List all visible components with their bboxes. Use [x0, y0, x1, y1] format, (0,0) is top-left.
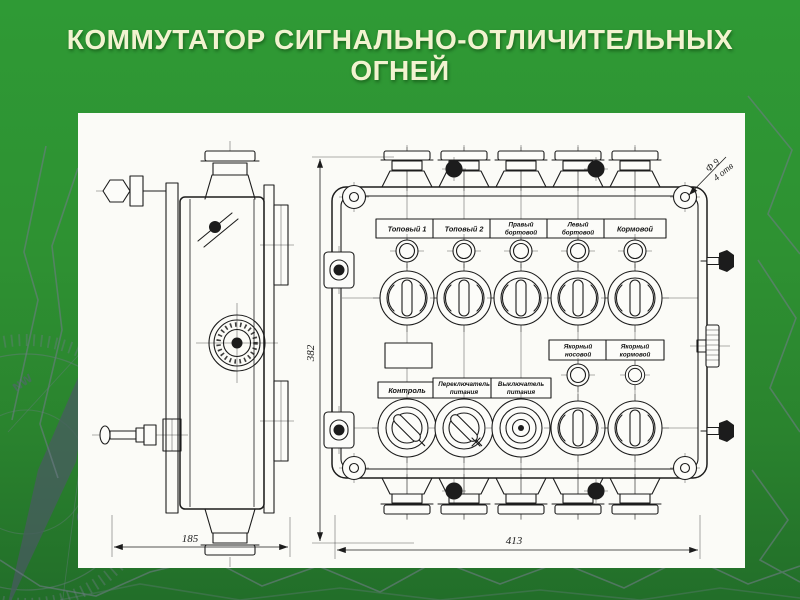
panel-label-yakorny-kormovoy: Якорный кормовой — [606, 340, 664, 360]
light-switch — [601, 264, 669, 332]
hole-callout: Ф 9 4 отв — [689, 152, 736, 195]
dim-413: 413 — [506, 535, 523, 547]
svg-text:Выключатель: Выключатель — [498, 381, 544, 388]
side-terminal-bolt — [701, 420, 734, 442]
indicator-lamp — [447, 234, 481, 268]
cable-gland-bottom — [381, 474, 433, 520]
compass-nw-label: NW — [10, 372, 35, 395]
drawing-panel: 185 — [78, 113, 745, 568]
dim-382: 382 — [305, 344, 317, 362]
svg-text:Правый: Правый — [509, 221, 534, 229]
cable-gland-bottom — [609, 474, 661, 520]
column-centerlines — [407, 147, 635, 519]
dimension-side-width: 185 — [112, 515, 290, 557]
cable-gland-bottom — [495, 474, 547, 520]
svg-text:Топовый 2: Топовый 2 — [445, 225, 484, 234]
svg-text:Переключатель: Переключатель — [438, 381, 490, 388]
slide-title: КОММУТАТОР СИГНАЛЬНО-ОТЛИЧИТЕЛЬНЫХ ОГНЕЙ — [0, 24, 800, 87]
indicator-lamp — [561, 358, 595, 392]
svg-text:кормовой: кормовой — [620, 351, 651, 359]
svg-text:Топовый 1: Топовый 1 — [388, 225, 427, 234]
svg-text:Якорный: Якорный — [563, 343, 593, 351]
technical-drawing: 185 — [78, 113, 745, 568]
front-view: Ф 9 4 отв Топовый 1 Топовый 2 — [305, 145, 736, 559]
indicator-lamp — [390, 234, 424, 268]
slide-title-line1: КОММУТАТОР СИГНАЛЬНО-ОТЛИЧИТЕЛЬНЫХ — [0, 24, 800, 55]
nameplate — [385, 343, 432, 368]
indicator-lamp — [620, 360, 650, 390]
svg-text:Кормовой: Кормовой — [617, 225, 654, 234]
lid-latch — [324, 246, 354, 294]
svg-text:Якорный: Якорный — [620, 343, 650, 351]
knurled-knob — [690, 325, 730, 367]
dim-185: 185 — [182, 533, 199, 545]
indicator-lamp — [504, 234, 538, 268]
svg-text:носовой: носовой — [565, 351, 591, 359]
mounting-bar — [166, 183, 178, 513]
side-gland-bottom — [201, 509, 259, 567]
cable-gland-top — [495, 145, 547, 191]
panel-label-yakorny-nosovoy: Якорный носовой — [549, 340, 607, 360]
cable-gland-top — [609, 145, 661, 191]
light-switch — [601, 394, 669, 462]
knob-face — [196, 303, 278, 383]
side-view: 185 — [92, 141, 294, 567]
lid-latch — [324, 406, 354, 454]
wall-flange — [260, 185, 294, 513]
indicator-lamp — [618, 234, 652, 268]
cable-gland-bottom — [438, 474, 490, 520]
side-gland-top — [201, 151, 259, 199]
cable-gland-top — [381, 145, 433, 191]
svg-text:Левый: Левый — [567, 221, 589, 229]
presentation-slide: S NW КОММУТАТОР СИГНАЛЬНО-ОТЛИЧИТЕЛЬНЫХ … — [0, 0, 800, 600]
slide-title-line2: ОГНЕЙ — [0, 55, 800, 86]
dimension-front-width: 413 — [335, 515, 700, 559]
clamp-bracket — [198, 213, 238, 247]
indicator-lamp — [561, 234, 595, 268]
side-terminal-bolt — [701, 250, 734, 272]
side-bolt-upper — [103, 176, 166, 206]
